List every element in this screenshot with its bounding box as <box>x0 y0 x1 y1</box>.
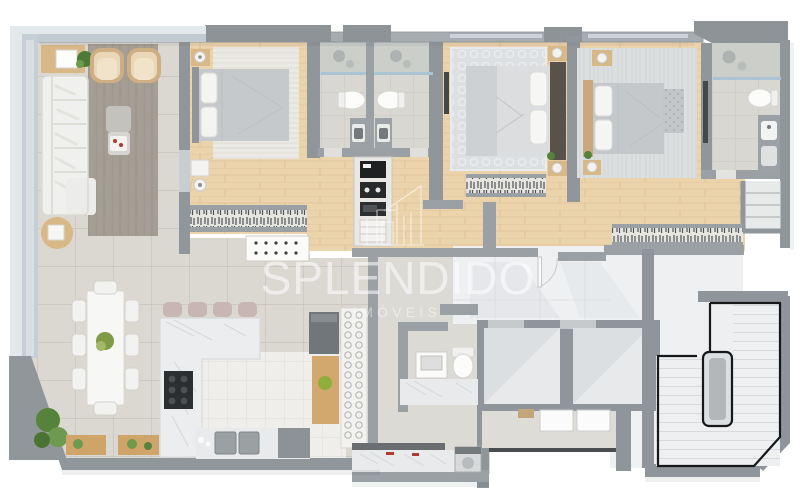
svg-text:IMÓVEIS: IMÓVEIS <box>353 304 441 320</box>
svg-text:SPLENDIDO: SPLENDIDO <box>261 252 536 304</box>
